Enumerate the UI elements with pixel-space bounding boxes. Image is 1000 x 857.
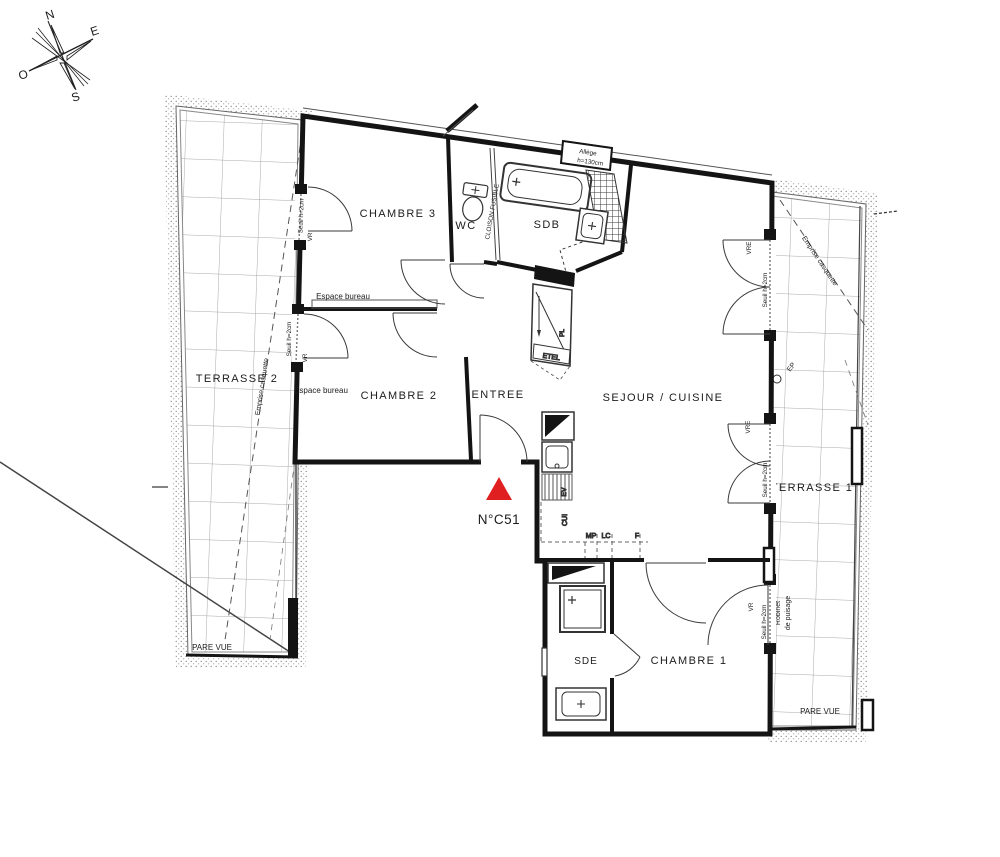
compass-east-label: E [89,23,101,39]
radiator [542,648,547,676]
pare-vue-screen-right [770,727,856,729]
terrasse-1: Emprise casquette TERRASSE 1 PARE VUE EP… [768,179,898,742]
compass-rose: N E S O [17,7,101,105]
compass-west-label: O [17,67,30,83]
mp-label: MP [586,533,597,540]
vr-label-chambre3: VR [307,232,314,241]
f-label: F [635,533,639,540]
room-label-sejour-cuisine: SEJOUR / CUISINE [603,392,724,404]
room-label-chambre-1: CHAMBRE 1 [651,655,728,667]
terrasse-2-wall-segment [288,598,298,656]
room-label-wc: WC [455,220,476,232]
room-label-sdb: SDB [534,219,561,231]
robinet-label-1: Robinet [775,601,782,625]
compass-south-label: S [70,89,82,105]
vr-label-chambre1: VR [748,602,755,611]
robinet-window [764,548,774,582]
entry-marker: N°C51 [478,477,520,527]
room-label-chambre-2: CHAMBRE 2 [361,390,438,402]
terrasse-1-rail-post-bottom [862,700,873,730]
pare-vue-label-left: PARE VUE [192,643,232,652]
room-label-chambre-3: CHAMBRE 3 [360,208,437,220]
seuil-label-sejour-upper: Seuil h=2cm [762,273,769,308]
entry-triangle-icon [486,477,512,500]
seuil-label-chambre2: Seuil h=2cm [286,322,293,357]
washbasin-sdb [576,208,608,244]
unit-number-label: N°C51 [478,512,520,527]
floor-plan-page: N E S O Emprise casquette TERRASSE 2 PAR… [0,0,1000,857]
room-label-entree: ENTREE [471,389,524,401]
wall-jut [447,105,477,131]
espace-bureau-label-upper: Espace bureau [316,292,370,301]
cui-label: CUI [562,514,569,526]
espace-bureau-label-lower: Espace bureau [294,386,348,395]
floor-plan-svg: N E S O Emprise casquette TERRASSE 2 PAR… [0,0,1000,857]
ev-label: EV [561,487,568,497]
room-label-sde: SDE [574,656,598,667]
terrasse-2: Emprise casquette TERRASSE 2 PARE VUE [0,94,313,668]
tick-mark-right [874,211,898,214]
room-label-terrasse-1: TERRASSE 1 [771,482,853,494]
robinet-label-2: de puisage [785,596,792,630]
vr-label-chambre2: VR [302,353,309,362]
pl-label: PL [559,329,566,337]
vre-label-upper: VRE [746,242,753,255]
compass-north-label: N [44,7,57,23]
lc-label: LC [602,533,611,540]
vre-label-lower: VRE [745,421,752,434]
seuil-label-chambre3: Seuil h=2cm [297,198,305,233]
terrasse-1-tiles [772,196,862,726]
pare-vue-screen-left [186,655,298,657]
pare-vue-label-right: PARE VUE [800,707,840,716]
seuil-label-chambre1: Seuil h=2cm [761,605,768,640]
terrasse-1-rail-post [852,428,862,484]
room-label-terrasse-2: TERRASSE 2 [196,373,278,385]
seuil-label-sejour-lower: Seuil h=2cm [762,463,769,498]
